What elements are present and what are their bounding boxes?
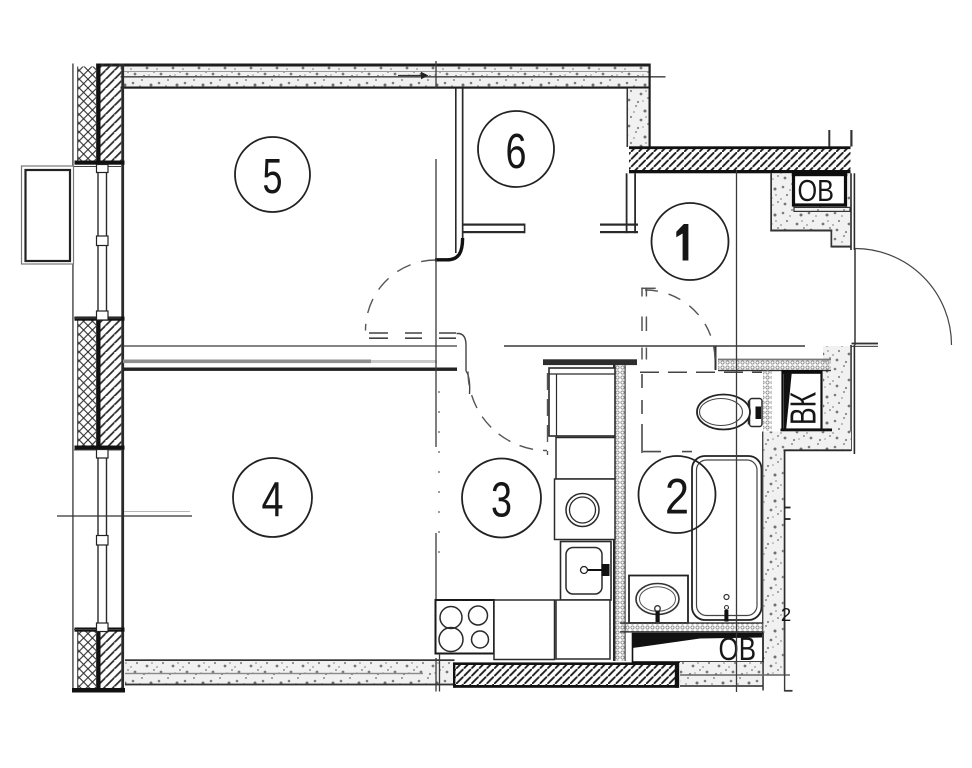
- svg-text:2: 2: [665, 469, 689, 525]
- svg-text:6: 6: [506, 125, 527, 179]
- svg-text:ОВ: ОВ: [798, 174, 835, 208]
- svg-text:3: 3: [491, 474, 512, 528]
- svg-text:ОВ: ОВ: [719, 631, 757, 667]
- svg-text:2: 2: [781, 604, 791, 625]
- svg-text:ВК: ВК: [783, 392, 824, 425]
- svg-text:5: 5: [263, 150, 283, 204]
- svg-text:4: 4: [262, 473, 284, 527]
